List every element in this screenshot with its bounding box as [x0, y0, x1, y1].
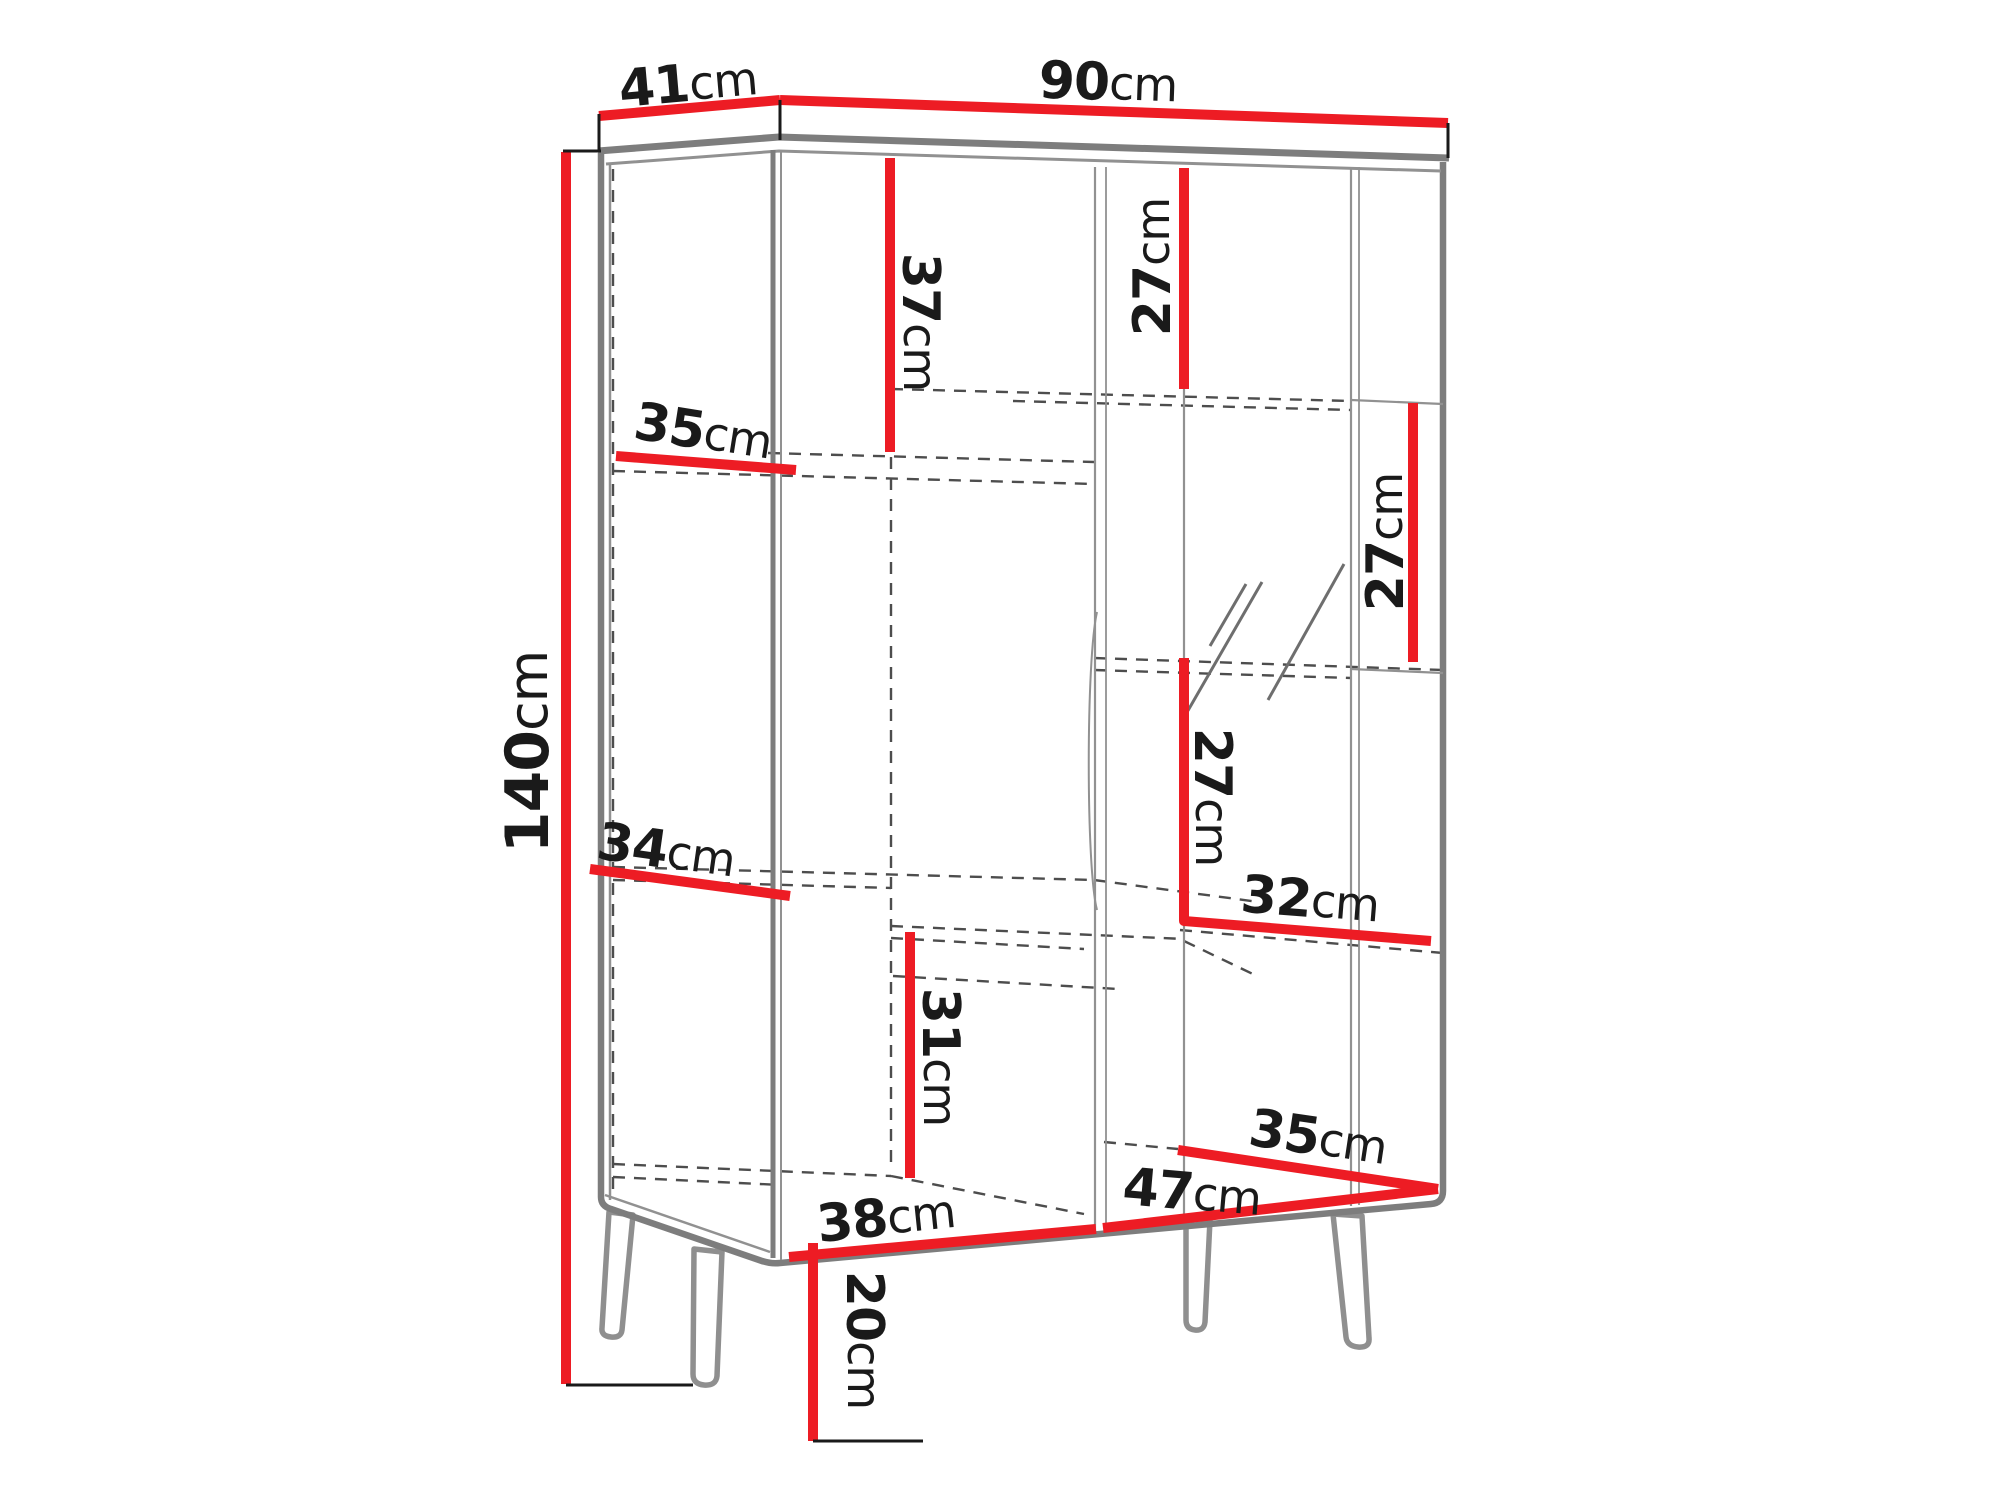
dim-label-width-top: 90cm: [1038, 51, 1178, 116]
dashed-shelf-line: [1094, 670, 1351, 678]
dashed-bottom-line: [613, 1177, 781, 1185]
dashed-bottom-line: [613, 1164, 891, 1176]
dim-label-upper-mid-section: 27cm: [1123, 198, 1183, 336]
dim-label-lower-mid-section: 31cm: [910, 988, 970, 1126]
dashed-shelf-line: [613, 471, 1094, 484]
interior-dashed-lines: [613, 169, 1443, 1214]
dim-label-bottom-right-width: 47cm: [1120, 1157, 1263, 1229]
glass-reflection-stroke: [1268, 564, 1344, 700]
dashed-shelf-line: [891, 926, 1184, 939]
dim-label-middle-section: 27cm: [1182, 728, 1242, 866]
glass-shelf-line-upper: [1351, 400, 1443, 404]
dim-label-upper-right-shelf: 27cm: [1356, 473, 1416, 611]
glass-reflections: [1186, 564, 1344, 714]
dashed-shelf-line: [1094, 658, 1443, 670]
dim-label-right-shelf-width: 32cm: [1239, 865, 1382, 936]
dim-label-depth-top: 41cm: [616, 48, 759, 120]
cabinet-shell: [601, 153, 1443, 1263]
dashed-shelf-line: [1094, 880, 1259, 902]
dashed-bottom-line: [1104, 1142, 1178, 1149]
glass-reflection-stroke: [1186, 582, 1262, 714]
leg-back-left: [602, 1212, 633, 1337]
leg-front-left: [693, 1249, 722, 1385]
cabinet-outline: [598, 137, 1449, 1263]
dim-label-upper-left-section: 37cm: [890, 253, 950, 391]
glass-reflection-stroke: [1210, 584, 1246, 646]
leg-front-right: [1333, 1214, 1369, 1347]
dashed-shelf-line: [891, 389, 1351, 401]
dashed-shelf-line: [1013, 401, 1351, 410]
cabinet-dimension-diagram: 41cm 90cm 140cm 37cm 27cm 27cm 27cm 35cm…: [0, 0, 2000, 1500]
diagram-page: 41cm 90cm 140cm 37cm 27cm 27cm 27cm 35cm…: [0, 0, 2000, 1500]
dashed-shelf-line: [1184, 941, 1259, 977]
leg-back-right: [1186, 1218, 1210, 1330]
dashed-shelf-line: [768, 453, 1094, 462]
dim-label-height-left: 140cm: [493, 651, 563, 854]
dashed-shelf-line: [891, 938, 1084, 949]
dim-label-leg-height: 20cm: [834, 1271, 894, 1409]
